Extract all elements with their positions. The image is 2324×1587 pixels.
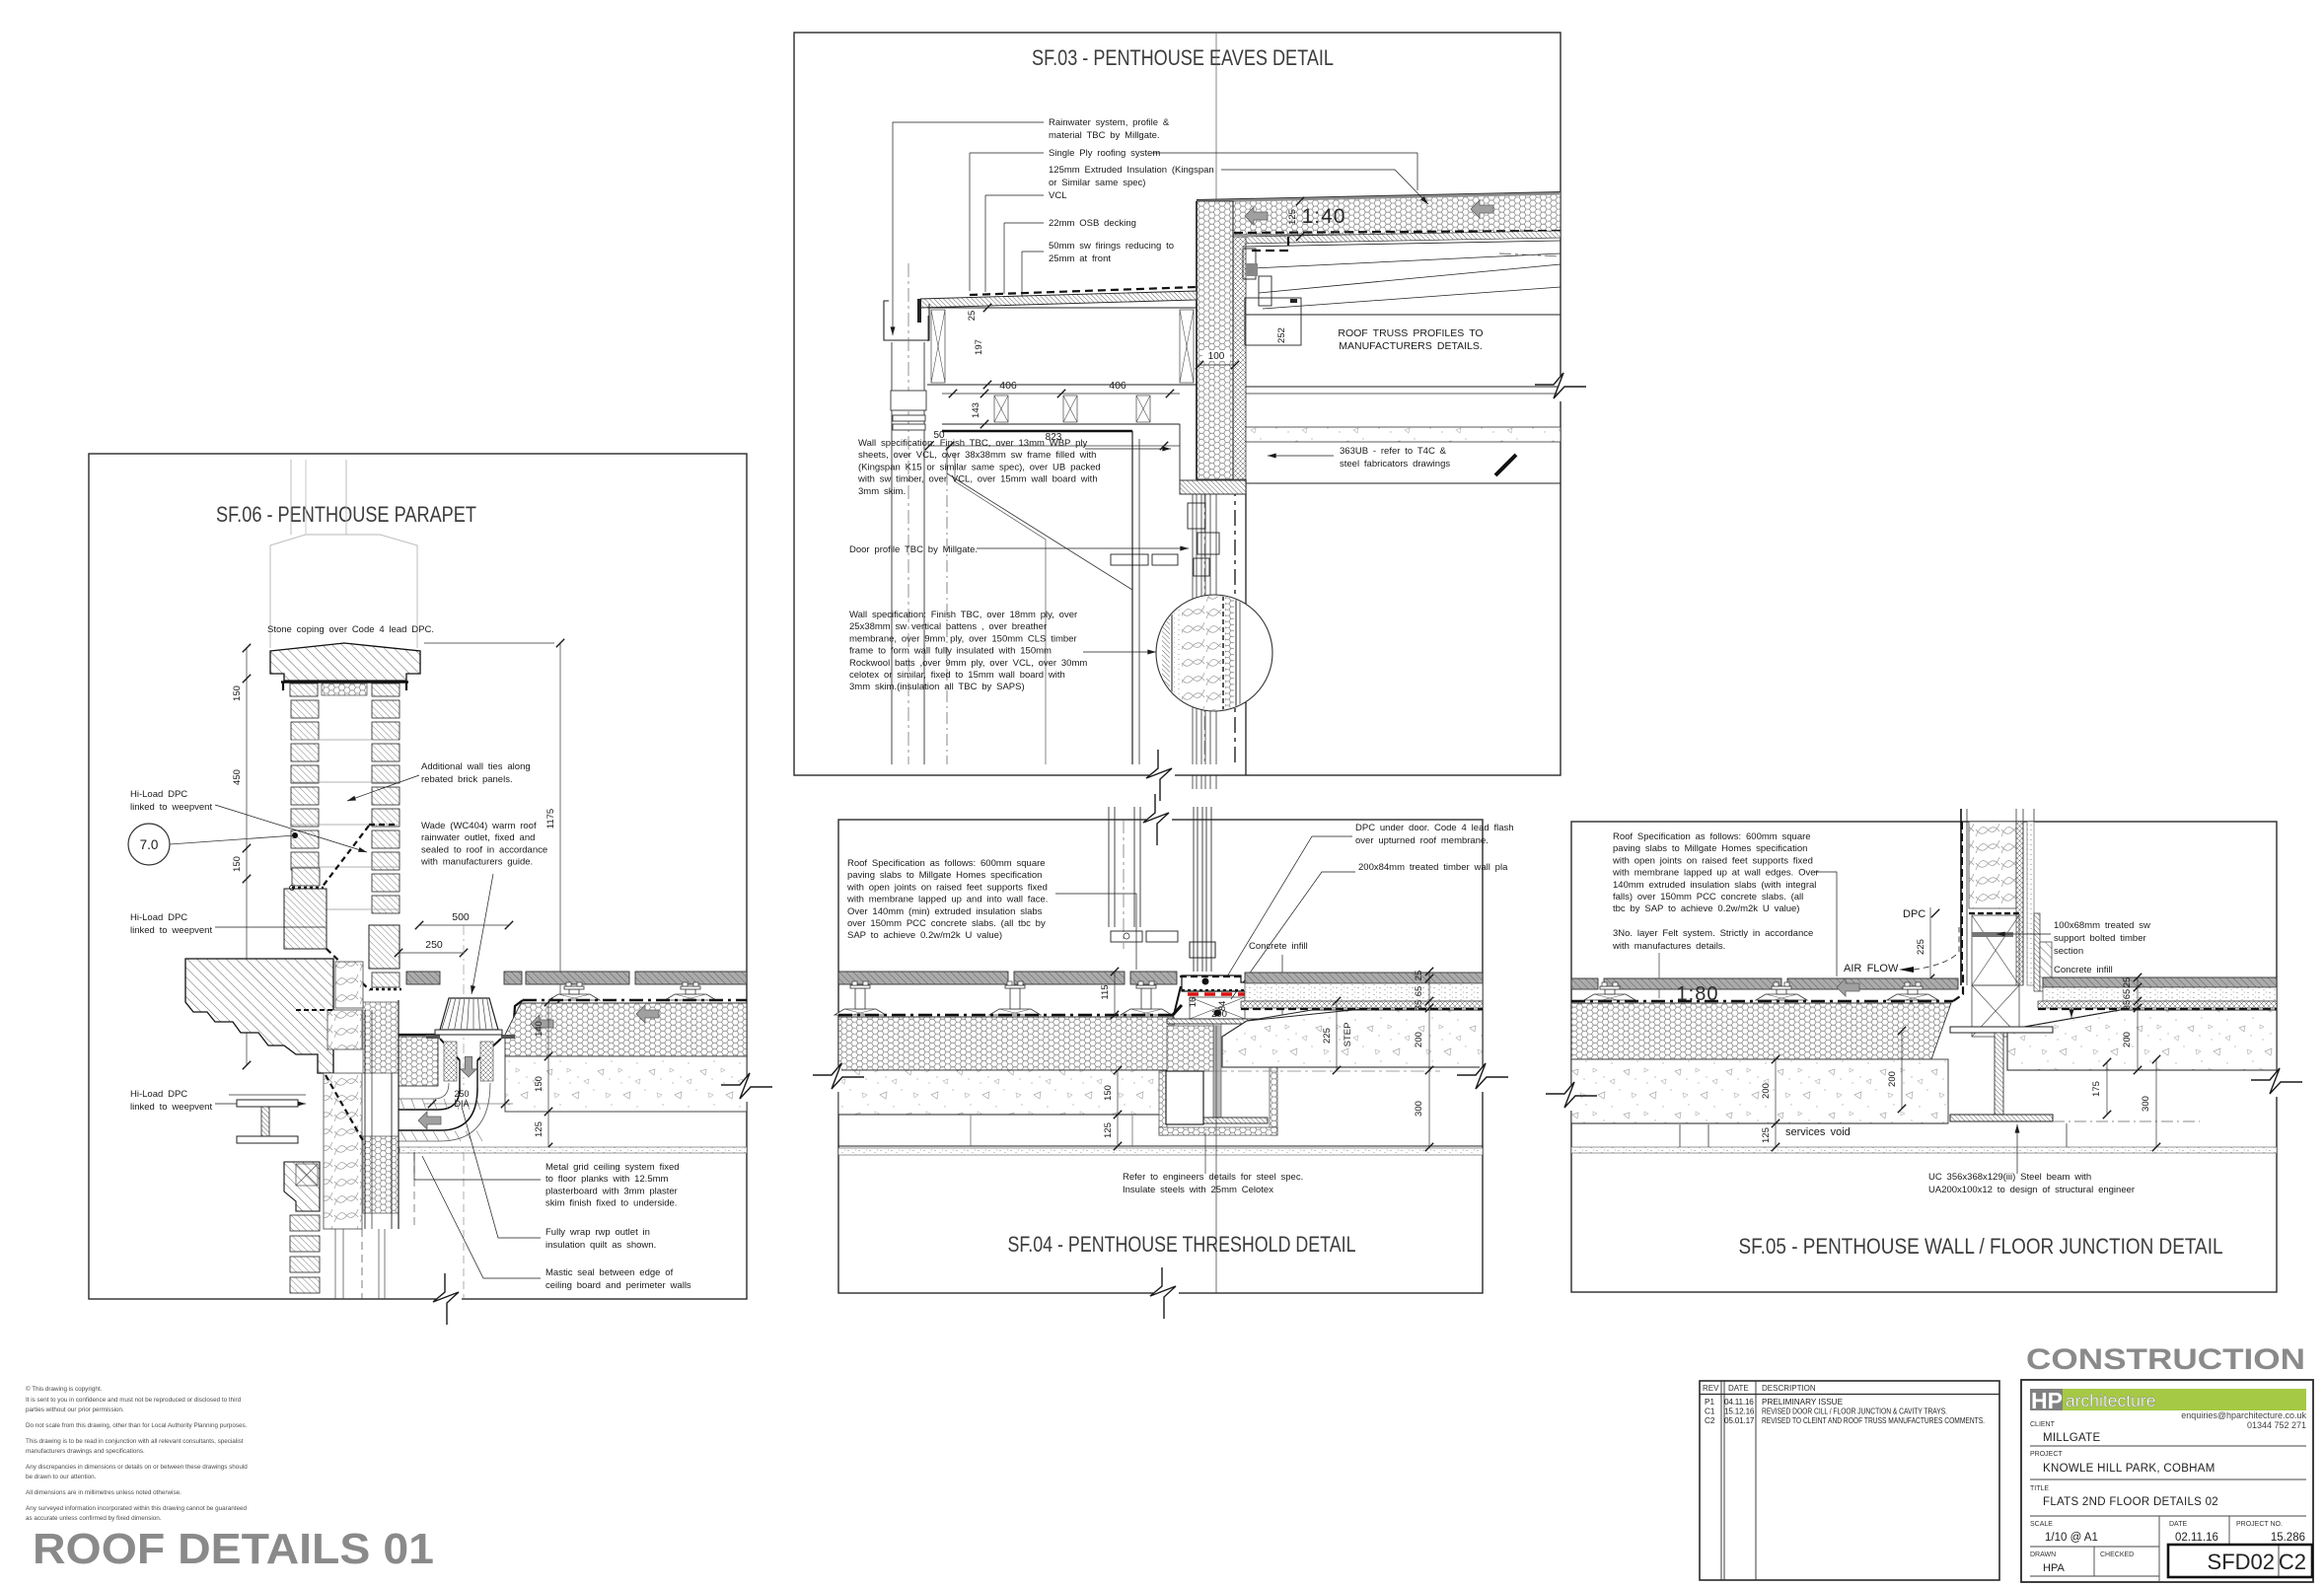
svg-text:Additional wall ties along: Additional wall ties along xyxy=(421,761,531,772)
svg-text:Rockwool batts ,over 9mm ply,: Rockwool batts ,over 9mm ply, over VCL, … xyxy=(849,658,1087,669)
svg-text:ceiling board and perimeter wa: ceiling board and perimeter walls xyxy=(545,1280,691,1291)
svg-text:Fully wrap rwp outlet in: Fully wrap rwp outlet in xyxy=(545,1227,650,1238)
svg-text:7.0: 7.0 xyxy=(140,837,159,852)
svg-text:225: 225 xyxy=(1322,1028,1333,1044)
svg-text:UA200x100x12 to design of stru: UA200x100x12 to design of structural eng… xyxy=(1928,1185,2135,1195)
svg-text:250: 250 xyxy=(425,939,443,951)
svg-text:200x84mm treated timber wall p: 200x84mm treated timber wall pla xyxy=(1358,862,1508,873)
svg-text:150: 150 xyxy=(232,685,243,701)
svg-text:SAP to achieve 0.2w/m2k U valu: SAP to achieve 0.2w/m2k U value) xyxy=(847,930,1002,941)
svg-text:100x68mm treated sw: 100x68mm treated sw xyxy=(2054,920,2150,931)
svg-text:Stone coping over Code 4 lead: Stone coping over Code 4 lead DPC. xyxy=(267,624,434,635)
svg-text:over 150mm PCC concrete slabs.: over 150mm PCC concrete slabs. (all tbc … xyxy=(847,918,1046,929)
svg-text:falls) over 150mm PCC concrete: falls) over 150mm PCC concrete slabs. (a… xyxy=(1613,892,1803,902)
svg-text:100: 100 xyxy=(1208,351,1225,362)
svg-text:(Kingspan K15 or similar same: (Kingspan K15 or similar same spec), ove… xyxy=(858,462,1101,472)
svg-text:C2: C2 xyxy=(1705,1416,1715,1425)
svg-text:25: 25 xyxy=(2122,977,2133,988)
svg-text:paving slabs to Millgate Homes: paving slabs to Millgate Homes specifica… xyxy=(1613,843,1807,854)
svg-text:1:80: 1:80 xyxy=(1677,983,1719,1005)
svg-text:150: 150 xyxy=(534,1076,545,1092)
svg-text:Hi-Load DPC: Hi-Load DPC xyxy=(130,1089,187,1100)
svg-text:22mm OSB decking: 22mm OSB decking xyxy=(1049,218,1136,229)
svg-text:65: 65 xyxy=(2122,989,2133,1000)
svg-text:frame to form wall fully insul: frame to form wall fully insulated with … xyxy=(849,646,1052,657)
svg-text:25mm at front: 25mm at front xyxy=(1049,253,1111,264)
svg-text:support bolted timber: support bolted timber xyxy=(2054,933,2146,944)
svg-text:HPA: HPA xyxy=(2043,1562,2065,1574)
svg-text:Refer to engineers details for: Refer to engineers details for steel spe… xyxy=(1123,1172,1303,1183)
svg-text:SCALE: SCALE xyxy=(2030,1521,2053,1528)
svg-text:225: 225 xyxy=(1916,939,1926,955)
svg-text:CONSTRUCTION: CONSTRUCTION xyxy=(2026,1343,2305,1376)
svg-text:500: 500 xyxy=(452,911,470,923)
svg-text:Wade (WC404) warm roof: Wade (WC404) warm roof xyxy=(421,821,537,831)
svg-text:linked to weepvent: linked to weepvent xyxy=(130,1102,212,1113)
svg-text:tbc by SAP to achieve 0.2w/m2k: tbc by SAP to achieve 0.2w/m2k U value) xyxy=(1613,903,1799,914)
svg-text:MANUFACTURERS DETAILS.: MANUFACTURERS DETAILS. xyxy=(1339,340,1483,352)
svg-text:DPC: DPC xyxy=(1903,908,1925,920)
svg-text:200: 200 xyxy=(1887,1071,1898,1087)
svg-text:enquiries@hparchitecture.co.uk: enquiries@hparchitecture.co.uk xyxy=(2181,1410,2306,1420)
svg-text:CHECKED: CHECKED xyxy=(2100,1551,2134,1558)
svg-text:STEP: STEP xyxy=(1343,1023,1353,1047)
svg-text:KNOWLE HILL PARK, COBHAM: KNOWLE HILL PARK, COBHAM xyxy=(2043,1463,2215,1475)
svg-text:200: 200 xyxy=(1414,1032,1424,1047)
svg-text:250: 250 xyxy=(454,1089,469,1099)
svg-text:02.11.16: 02.11.16 xyxy=(2175,1532,2218,1544)
svg-text:SFD02: SFD02 xyxy=(2208,1550,2275,1574)
svg-text:150: 150 xyxy=(232,856,243,872)
svg-text:rainwater outlet, fixed and: rainwater outlet, fixed and xyxy=(421,832,535,843)
svg-text:REVISED TO CLEINT AND ROOF TRU: REVISED TO CLEINT AND ROOF TRUSS MANUFAC… xyxy=(1762,1416,1985,1425)
svg-text:steel fabricators drawings: steel fabricators drawings xyxy=(1340,459,1450,469)
svg-text:membrane, over 9mm ply, over 1: membrane, over 9mm ply, over 150mm CLS t… xyxy=(849,633,1077,644)
svg-text:143: 143 xyxy=(971,402,981,418)
svg-text:Roof Specification as follows:: Roof Specification as follows: 600mm squ… xyxy=(1613,831,1811,842)
svg-text:300: 300 xyxy=(1414,1101,1424,1117)
svg-text:REVISED DOOR CILL / FLOOR JUNC: REVISED DOOR CILL / FLOOR JUNCTION & CAV… xyxy=(1762,1407,1947,1416)
svg-text:TITLE: TITLE xyxy=(2030,1485,2049,1492)
svg-text:with membrane lapped up and in: with membrane lapped up and into wall fa… xyxy=(846,895,1048,905)
svg-text:Roof Specification as follows:: Roof Specification as follows: 600mm squ… xyxy=(847,858,1046,869)
svg-text:ROOF DETAILS 01: ROOF DETAILS 01 xyxy=(33,1525,434,1573)
svg-text:plasterboard with 3mm plaster: plasterboard with 3mm plaster xyxy=(545,1186,678,1196)
svg-text:35: 35 xyxy=(1414,1000,1424,1011)
svg-text:parties without our prior perm: parties without our prior permission. xyxy=(26,1407,124,1413)
svg-text:This drawing is to be read in: This drawing is to be read in conjunctio… xyxy=(26,1438,244,1445)
svg-text:200: 200 xyxy=(2122,1032,2133,1047)
svg-text:with open joints on raised fee: with open joints on raised feet supports… xyxy=(846,882,1048,893)
svg-text:sealed to roof in accordance: sealed to roof in accordance xyxy=(421,844,547,855)
svg-text:DATE: DATE xyxy=(1728,1384,1749,1393)
svg-text:Any surveyed information incor: Any surveyed information incorporated wi… xyxy=(26,1505,248,1512)
svg-text:05.01.17: 05.01.17 xyxy=(1724,1416,1755,1425)
svg-text:PROJECT: PROJECT xyxy=(2030,1451,2063,1458)
svg-text:C2: C2 xyxy=(2279,1550,2306,1574)
svg-text:section: section xyxy=(2054,946,2083,957)
svg-text:3mm skim.(insulation all TBC b: 3mm skim.(insulation all TBC by SAPS) xyxy=(849,682,1025,692)
svg-text:UC 356x368x129(iii) Steel beam: UC 356x368x129(iii) Steel beam with xyxy=(1928,1172,2091,1183)
svg-text:DESCRIPTION: DESCRIPTION xyxy=(1762,1384,1816,1393)
svg-text:04.11.16: 04.11.16 xyxy=(1724,1398,1754,1407)
svg-text:3mm skim.: 3mm skim. xyxy=(858,486,906,497)
svg-text:125: 125 xyxy=(1761,1127,1772,1143)
svg-text:DATE: DATE xyxy=(2169,1521,2187,1528)
svg-text:sheets, over VCL, over 38x38m: sheets, over VCL, over 38x38mm sw frame … xyxy=(858,450,1096,461)
svg-text:140: 140 xyxy=(534,1021,545,1037)
svg-text:Wall specification: Finish TBC: Wall specification: Finish TBC, over 13m… xyxy=(858,438,1087,449)
svg-text:as accurate unless confirmed b: as accurate unless confirmed by fixed di… xyxy=(26,1515,162,1522)
svg-text:PRELIMINARY ISSUE: PRELIMINARY ISSUE xyxy=(1762,1398,1844,1407)
svg-text:Mastic seal between edge of: Mastic seal between edge of xyxy=(545,1267,674,1278)
svg-text:35: 35 xyxy=(2122,1000,2133,1011)
svg-text:REV: REV xyxy=(1703,1384,1719,1393)
svg-text:Concrete infill: Concrete infill xyxy=(2054,965,2113,975)
svg-text:01344 752 271: 01344 752 271 xyxy=(2247,1420,2306,1430)
svg-text:115: 115 xyxy=(1100,984,1111,999)
svg-text:to floor planks with 12.5mm: to floor planks with 12.5mm xyxy=(545,1174,669,1185)
svg-text:197: 197 xyxy=(974,339,984,355)
svg-text:150: 150 xyxy=(1103,1085,1114,1101)
svg-text:15.12.16: 15.12.16 xyxy=(1724,1407,1755,1416)
svg-text:50mm sw firings reducing to: 50mm sw firings reducing to xyxy=(1049,241,1174,252)
svg-text:MILLGATE: MILLGATE xyxy=(2043,1432,2100,1444)
svg-text:16: 16 xyxy=(1188,997,1198,1008)
svg-text:140mm extruded insulation slab: 140mm extruded insulation slabs (with in… xyxy=(1613,880,1816,891)
svg-text:HP: HP xyxy=(2031,1388,2063,1413)
svg-text:skim finish fixed to underside: skim finish fixed to underside. xyxy=(545,1198,677,1209)
svg-text:with manufactures details.: with manufactures details. xyxy=(1612,941,1725,952)
svg-text:1:40: 1:40 xyxy=(1302,205,1346,228)
svg-text:450: 450 xyxy=(232,769,243,785)
svg-text:SF.04 - PENTHOUSE THRESHOLD DE: SF.04 - PENTHOUSE THRESHOLD DETAIL xyxy=(1008,1232,1356,1257)
svg-text:FLATS 2ND FLOOR DETAILS 02: FLATS 2ND FLOOR DETAILS 02 xyxy=(2043,1496,2218,1508)
svg-text:paving slabs to Millgate Homes: paving slabs to Millgate Homes specifica… xyxy=(847,870,1042,881)
svg-text:65: 65 xyxy=(1414,986,1424,997)
svg-text:Insulate steels with 25mm Celo: Insulate steels with 25mm Celotex xyxy=(1123,1185,1273,1195)
svg-text:insulation quilt as shown.: insulation quilt as shown. xyxy=(545,1240,656,1251)
svg-text:It is sent to you in confidenc: It is sent to you in confidence and must… xyxy=(26,1397,242,1404)
svg-text:or Similar same spec): or Similar same spec) xyxy=(1049,178,1145,188)
svg-text:300: 300 xyxy=(2141,1096,2151,1112)
svg-text:over upturned roof membrane.: over upturned roof membrane. xyxy=(1355,835,1489,846)
svg-text:DRAWN: DRAWN xyxy=(2030,1551,2056,1558)
svg-text:All dimensions are in millimet: All dimensions are in millimetres unless… xyxy=(26,1489,182,1496)
svg-text:services void: services void xyxy=(1785,1126,1851,1138)
svg-text:175: 175 xyxy=(2091,1081,2102,1097)
svg-text:25: 25 xyxy=(967,311,978,322)
svg-text:125: 125 xyxy=(1287,209,1298,225)
svg-text:linked to weepvent: linked to weepvent xyxy=(130,802,212,813)
svg-text:celotex or similar, fixed to 1: celotex or similar, fixed to 15mm wall b… xyxy=(849,670,1065,681)
svg-text:Wall specification: Finish TBC: Wall specification: Finish TBC, over 18m… xyxy=(849,610,1077,620)
svg-text:3No. layer Felt system. Strict: 3No. layer Felt system. Strictly in acco… xyxy=(1613,928,1813,939)
svg-text:with membrane lapped up at wal: with membrane lapped up at wall edges. O… xyxy=(1612,868,1819,879)
svg-text:SF.03 - PENTHOUSE EAVES DETAIL: SF.03 - PENTHOUSE EAVES DETAIL xyxy=(1032,45,1334,70)
svg-text:Any discrepancies in dimension: Any discrepancies in dimensions or detai… xyxy=(26,1464,248,1471)
svg-text:363UB - refer to T4C &: 363UB - refer to T4C & xyxy=(1340,446,1447,457)
svg-text:C1: C1 xyxy=(1705,1407,1715,1416)
svg-text:1175: 1175 xyxy=(545,809,556,829)
svg-text:linked to weepvent: linked to weepvent xyxy=(130,925,212,936)
svg-text:15.286: 15.286 xyxy=(2271,1532,2305,1544)
svg-text:125mm Extruded Insulation (Kin: 125mm Extruded Insulation (Kingspan xyxy=(1049,165,1214,176)
svg-text:Over 140mm (min) extruded insu: Over 140mm (min) extruded insulation sla… xyxy=(847,906,1043,917)
svg-text:125: 125 xyxy=(1103,1122,1114,1138)
svg-text:CLIENT: CLIENT xyxy=(2030,1421,2056,1428)
svg-text:200: 200 xyxy=(1761,1083,1772,1099)
svg-text:Hi-Load DPC: Hi-Load DPC xyxy=(130,789,187,800)
svg-text:with manufacturers guide.: with manufacturers guide. xyxy=(420,857,533,868)
svg-text:manufacturers drawings and spe: manufacturers drawings and specification… xyxy=(26,1448,145,1455)
svg-text:252: 252 xyxy=(1276,327,1287,343)
svg-text:with open joints on raised fee: with open joints on raised feet supports… xyxy=(1612,855,1813,866)
svg-text:VCL: VCL xyxy=(1049,190,1066,201)
svg-text:rebated brick panels.: rebated brick panels. xyxy=(421,774,513,785)
svg-text:architecture: architecture xyxy=(2066,1391,2155,1410)
svg-text:SF.05 - PENTHOUSE WALL / FLOOR: SF.05 - PENTHOUSE WALL / FLOOR JUNCTION … xyxy=(1739,1234,2223,1259)
svg-text:25: 25 xyxy=(1414,971,1424,981)
svg-text:be drawn to our attention.: be drawn to our attention. xyxy=(26,1474,97,1480)
svg-text:P1: P1 xyxy=(1705,1398,1714,1407)
svg-text:200: 200 xyxy=(1211,1009,1227,1020)
svg-text:125: 125 xyxy=(534,1121,545,1137)
svg-text:Concrete infill: Concrete infill xyxy=(1249,941,1308,952)
svg-text:Door profile TBC by Millgate.: Door profile TBC by Millgate. xyxy=(849,544,978,555)
svg-text:Do not scale from this drawing: Do not scale from this drawing, other th… xyxy=(26,1422,248,1429)
svg-text:Metal grid ceiling system fixe: Metal grid ceiling system fixed xyxy=(545,1162,680,1173)
svg-text:Hi-Load DPC: Hi-Load DPC xyxy=(130,912,187,923)
svg-text:406: 406 xyxy=(999,380,1017,392)
svg-text:with sw timber, over VCL, over: with sw timber, over VCL, over 15mm wall… xyxy=(857,474,1098,485)
svg-text:DPC under door. Code 4 lead fl: DPC under door. Code 4 lead flash xyxy=(1355,823,1514,833)
svg-text:ROOF TRUSS PROFILES TO: ROOF TRUSS PROFILES TO xyxy=(1338,327,1483,339)
svg-text:AIR FLOW: AIR FLOW xyxy=(1844,963,1899,974)
svg-text:406: 406 xyxy=(1109,380,1126,392)
svg-text:25x38mm sw vertical battens ,: 25x38mm sw vertical battens , over breat… xyxy=(849,621,1047,632)
svg-text:Single Ply roofing system: Single Ply roofing system xyxy=(1049,148,1160,159)
svg-text:Rainwater system, profile &: Rainwater system, profile & xyxy=(1049,117,1170,128)
svg-text:1/10 @ A1: 1/10 @ A1 xyxy=(2045,1532,2098,1544)
svg-text:© This drawing is copyright.: © This drawing is copyright. xyxy=(26,1385,103,1393)
svg-text:material TBC by Millgate.: material TBC by Millgate. xyxy=(1049,130,1160,141)
svg-text:PROJECT NO.: PROJECT NO. xyxy=(2236,1521,2283,1528)
